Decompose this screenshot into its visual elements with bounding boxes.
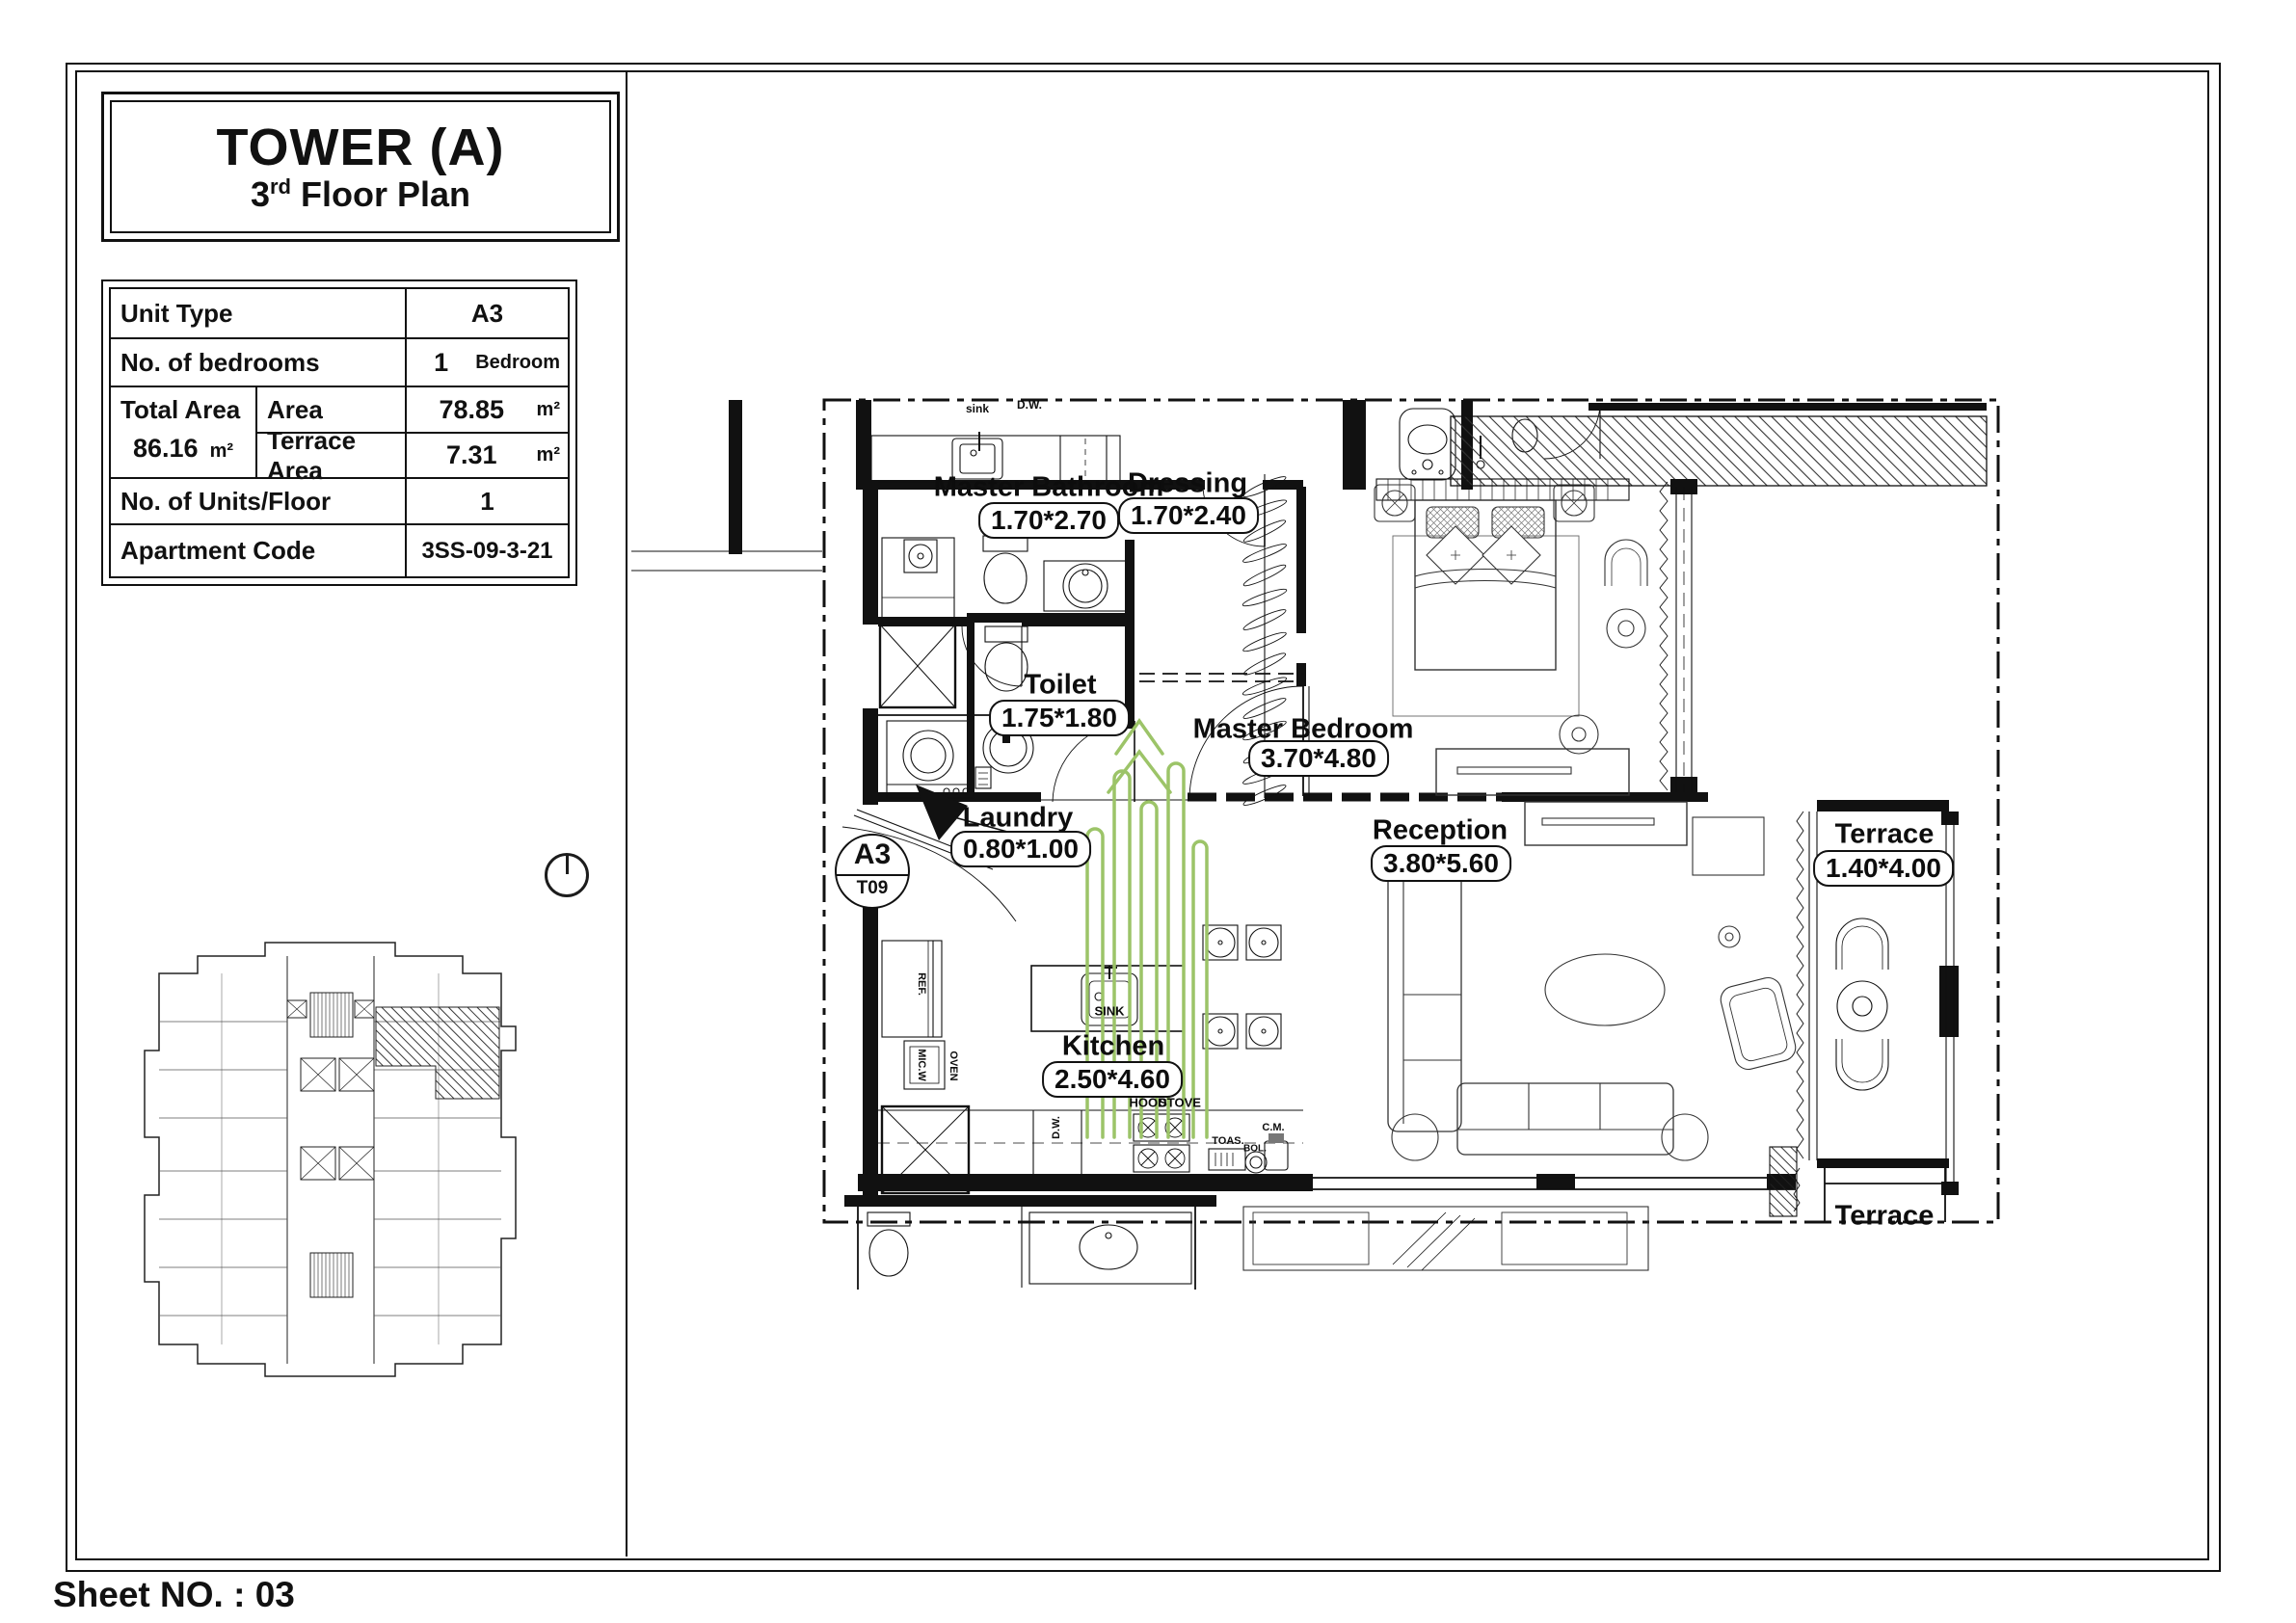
room-label-terrace-lower: Terrace (1835, 1201, 1935, 1233)
floor-plan-drawing (0, 0, 2296, 1623)
dishwasher-label: D.W. (1051, 1116, 1062, 1139)
room-label-laundry: Laundry (963, 803, 1073, 835)
unit-type-value: A3 (407, 289, 568, 339)
coffee-maker-label: C.M. (1262, 1122, 1284, 1133)
room-dims-kitchen: 2.50*4.60 (1042, 1061, 1183, 1098)
stove-label: STOVE (1159, 1096, 1201, 1110)
drawing-sheet: TOWER (A) 3rd Floor Plan Unit Type A3 No… (0, 0, 2296, 1623)
toaster-label: TOAS. (1212, 1135, 1243, 1147)
room-dims-master-bathroom: 1.70*2.70 (978, 502, 1119, 539)
title-block: TOWER (A) 3rd Floor Plan (101, 92, 620, 242)
units-per-floor-value: 1 (407, 479, 568, 525)
hatch-strip (1451, 403, 1987, 486)
key-plan (145, 943, 516, 1376)
sink-label-top: sink (966, 402, 989, 415)
unit-type-label: Unit Type (111, 289, 407, 339)
units-per-floor-label: No. of Units/Floor (111, 479, 407, 525)
room-dims-reception: 3.80*5.60 (1371, 845, 1511, 882)
microwave-label: MIC.W (916, 1049, 927, 1081)
bedrooms-value: 1 Bedroom (407, 339, 568, 387)
outside-corridor (631, 400, 822, 571)
terrace-area-value: 7.31 m² (407, 434, 568, 479)
room-label-dressing: Dressing (1128, 468, 1247, 500)
lower-strip (844, 1195, 1648, 1290)
shafts (880, 625, 969, 1193)
oven-label: OVEN (948, 1051, 959, 1080)
refrigerator-label: REF. (916, 972, 927, 996)
room-dims-master-bedroom: 3.70*4.80 (1248, 740, 1389, 777)
unit-marker: A3 T09 (835, 834, 910, 909)
area-value: 78.85 m² (407, 387, 568, 434)
unit-marker-unit: A3 (837, 836, 908, 876)
room-dims-laundry: 0.80*1.00 (950, 831, 1091, 867)
room-dims-terrace: 1.40*4.00 (1813, 850, 1954, 887)
bedrooms-label: No. of bedrooms (111, 339, 407, 387)
room-label-terrace: Terrace (1835, 819, 1935, 851)
terrace-area-label: Terrace Area (257, 434, 407, 479)
boiler-label: BOL. (1243, 1144, 1267, 1155)
room-label-kitchen: Kitchen (1062, 1031, 1164, 1063)
kitchen-area (858, 896, 1796, 1195)
unit-info-table: Unit Type A3 No. of bedrooms 1 Bedroom T… (101, 279, 577, 586)
apartment-code-label: Apartment Code (111, 525, 407, 576)
floor-plan-subtitle: 3rd Floor Plan (251, 175, 470, 214)
total-area-cell: Total Area 86.16m² (111, 387, 257, 479)
room-dims-toilet: 1.75*1.80 (989, 700, 1130, 736)
orientation-icon (545, 853, 589, 897)
sheet-number: Sheet NO. : 03 (53, 1575, 295, 1615)
key-plan-unit-highlight (376, 1007, 499, 1099)
room-dims-dressing: 1.70*2.40 (1118, 497, 1259, 534)
island-sink-label: SINK (1094, 1004, 1124, 1019)
stools (1203, 925, 1281, 1049)
tower-title: TOWER (A) (217, 120, 505, 175)
dishwasher-label-top: D.W. (1017, 398, 1042, 412)
room-label-reception: Reception (1373, 815, 1508, 847)
apartment-code-value: 3SS-09-3-21 (407, 525, 568, 576)
unit-marker-tower: T09 (857, 876, 889, 901)
bed-furniture (1375, 485, 1647, 795)
room-label-toilet: Toilet (1024, 670, 1096, 702)
